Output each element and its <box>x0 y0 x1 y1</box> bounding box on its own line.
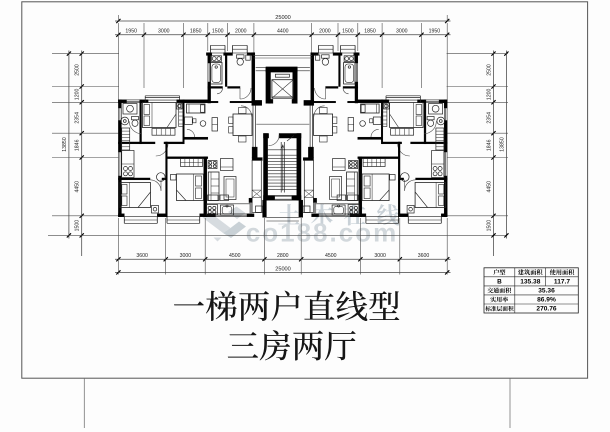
svg-text:3000: 3000 <box>374 253 386 259</box>
svg-text:3000: 3000 <box>180 253 192 259</box>
svg-text:4450: 4450 <box>486 181 492 193</box>
svg-text:2500: 2500 <box>486 64 492 76</box>
svg-text:1500: 1500 <box>342 29 354 35</box>
svg-text:117.7: 117.7 <box>554 278 570 285</box>
svg-text:13850: 13850 <box>499 137 505 152</box>
svg-text:1500: 1500 <box>212 29 224 35</box>
svg-text:1500: 1500 <box>75 220 81 232</box>
svg-text:1846: 1846 <box>486 139 492 151</box>
svg-text:25000: 25000 <box>275 15 291 21</box>
svg-text:B: B <box>497 278 502 285</box>
svg-text:2354: 2354 <box>75 112 81 124</box>
svg-text:25000: 25000 <box>275 266 291 272</box>
svg-text:2000: 2000 <box>319 29 331 35</box>
svg-text:1500: 1500 <box>486 220 492 232</box>
svg-text:3600: 3600 <box>136 253 148 259</box>
svg-text:1846: 1846 <box>75 139 81 151</box>
svg-text:1200: 1200 <box>486 89 492 101</box>
svg-text:35.36: 35.36 <box>538 287 555 294</box>
svg-text:4500: 4500 <box>325 253 337 259</box>
svg-text:4450: 4450 <box>75 181 81 193</box>
svg-text:co188.com: co188.com <box>246 218 398 248</box>
svg-text:1200: 1200 <box>75 89 81 101</box>
svg-text:2500: 2500 <box>75 64 81 76</box>
svg-text:86.9%: 86.9% <box>537 297 556 304</box>
svg-text:2000: 2000 <box>235 29 247 35</box>
svg-text:3600: 3600 <box>418 253 430 259</box>
svg-text:135.38: 135.38 <box>520 278 541 285</box>
svg-text:1950: 1950 <box>125 29 137 35</box>
svg-text:4500: 4500 <box>229 253 241 259</box>
svg-text:1950: 1950 <box>429 29 441 35</box>
svg-text:2354: 2354 <box>486 112 492 124</box>
svg-text:4400: 4400 <box>277 29 289 35</box>
svg-text:2800: 2800 <box>277 253 289 259</box>
svg-text:3000: 3000 <box>158 29 170 35</box>
svg-text:1850: 1850 <box>364 29 376 35</box>
svg-text:1850: 1850 <box>190 29 202 35</box>
svg-text:13850: 13850 <box>62 137 68 152</box>
svg-text:3000: 3000 <box>396 29 408 35</box>
svg-text:270.76: 270.76 <box>536 306 557 313</box>
